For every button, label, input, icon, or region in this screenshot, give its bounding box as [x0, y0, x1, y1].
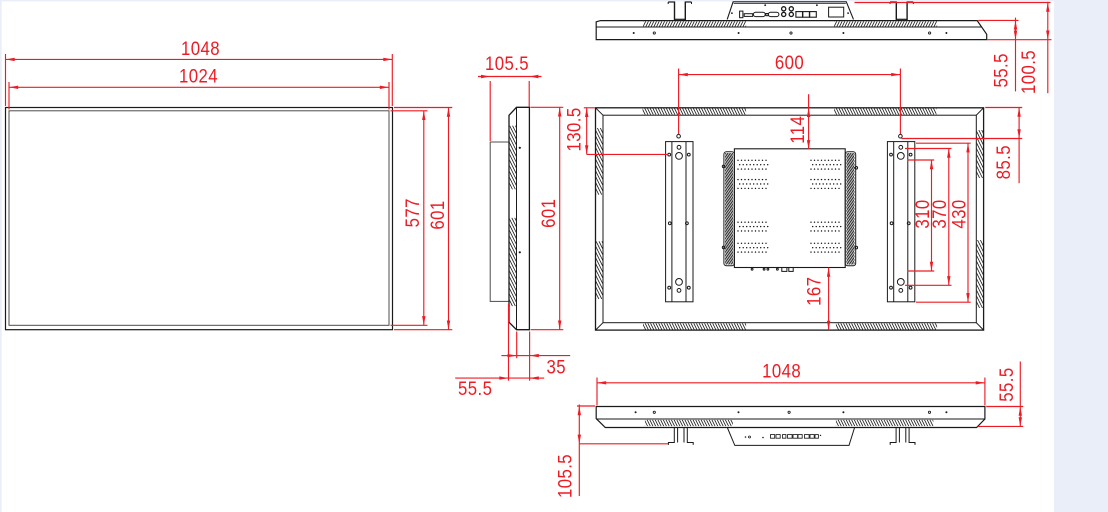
svg-text:577: 577: [402, 198, 423, 227]
svg-text:1024: 1024: [179, 65, 218, 86]
svg-text:55.5: 55.5: [458, 378, 492, 399]
svg-text:85.5: 85.5: [993, 145, 1014, 179]
svg-text:601: 601: [427, 200, 448, 229]
svg-text:114: 114: [787, 116, 808, 144]
svg-text:1048: 1048: [181, 38, 220, 59]
svg-text:430: 430: [948, 199, 969, 228]
svg-text:105.5: 105.5: [485, 53, 529, 74]
svg-text:601: 601: [538, 199, 559, 228]
svg-text:1048: 1048: [762, 361, 801, 382]
svg-text:55.5: 55.5: [996, 367, 1017, 401]
svg-text:100.5: 100.5: [1018, 50, 1039, 94]
svg-text:55.5: 55.5: [990, 53, 1011, 87]
svg-text:130.5: 130.5: [563, 107, 584, 151]
svg-text:600: 600: [775, 52, 804, 73]
svg-text:167: 167: [803, 277, 824, 306]
svg-text:35: 35: [546, 357, 566, 378]
svg-text:105.5: 105.5: [554, 454, 575, 498]
